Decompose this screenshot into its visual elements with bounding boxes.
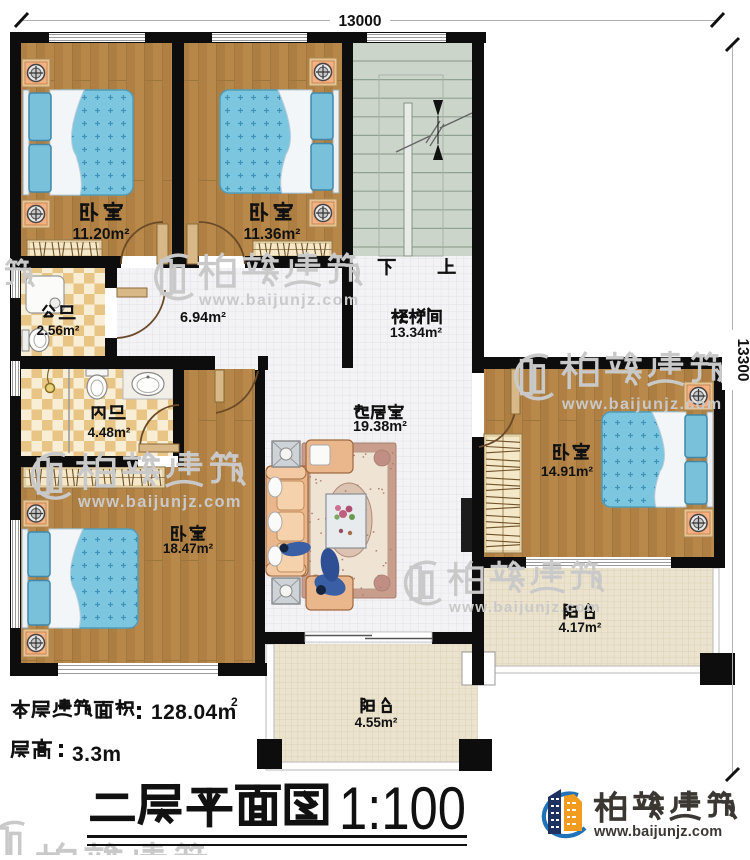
svg-text:www.baijunjz.com: www.baijunjz.com [561,396,723,413]
svg-text:2: 2 [231,695,238,709]
svg-text:www.baijunjz.com: www.baijunjz.com [198,292,360,309]
svg-text:1:100: 1:100 [339,775,466,842]
svg-text:2.56m²: 2.56m² [37,323,80,338]
svg-text:19.38m²: 19.38m² [353,419,407,435]
svg-text:11.20m²: 11.20m² [73,226,130,243]
svg-text:www.baijunjz.com: www.baijunjz.com [593,824,722,840]
svg-text:13000: 13000 [338,13,381,30]
svg-text:128.04m: 128.04m [151,701,237,724]
svg-text:4.17m²: 4.17m² [559,620,602,635]
svg-text:6.94m²: 6.94m² [180,310,226,326]
svg-text:13.34m²: 13.34m² [390,324,442,340]
svg-text:4.55m²: 4.55m² [355,715,398,730]
svg-text:14.91m²: 14.91m² [541,463,593,479]
svg-text:11.36m²: 11.36m² [244,226,301,243]
svg-text:3.3m: 3.3m [72,743,121,766]
svg-text:www.baijunjz.com: www.baijunjz.com [448,599,601,616]
svg-text:4.48m²: 4.48m² [88,425,131,440]
svg-text:18.47m²: 18.47m² [163,541,214,556]
svg-text:13300: 13300 [734,338,750,381]
svg-text:www.baijunjz.com: www.baijunjz.com [77,493,242,511]
